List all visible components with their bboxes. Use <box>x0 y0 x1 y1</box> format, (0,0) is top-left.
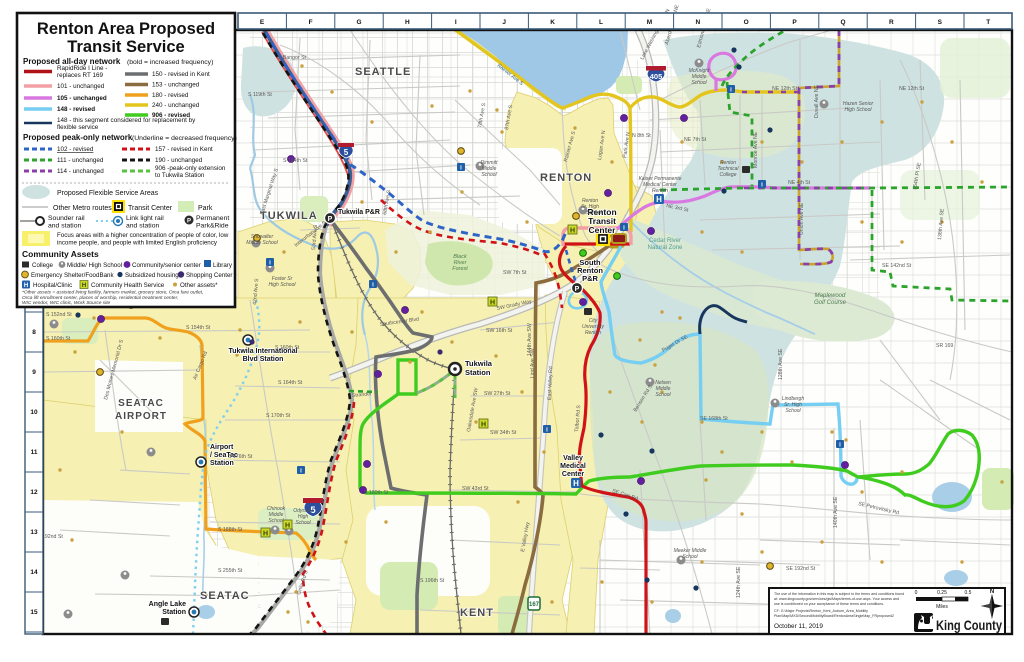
svg-text:S 180th St: S 180th St <box>364 490 389 496</box>
svg-text:College: College <box>720 172 737 178</box>
svg-text:H: H <box>573 479 579 488</box>
svg-text:and station: and station <box>48 223 81 230</box>
svg-text:NE 7th St: NE 7th St <box>684 137 707 143</box>
svg-text:E: E <box>260 19 265 26</box>
svg-text:Center: Center <box>589 225 617 235</box>
svg-text:Park&Ride: Park&Ride <box>196 223 229 230</box>
svg-text:Miles: Miles <box>936 604 948 610</box>
svg-text:F: F <box>309 19 313 26</box>
svg-text:Medical: Medical <box>560 463 586 470</box>
svg-text:101 - unchanged: 101 - unchanged <box>57 83 105 90</box>
svg-text:Orca lift enrollment center, p: Orca lift enrollment center, places of w… <box>22 295 178 301</box>
svg-text:Renton: Renton <box>652 188 668 194</box>
svg-text:Natural Zone: Natural Zone <box>648 245 683 251</box>
svg-text:H: H <box>656 195 662 204</box>
svg-text:CF: G:\Major Projects\Renton_: CF: G:\Major Projects\Renton_Kent_Auburn… <box>774 609 868 613</box>
svg-text:to Tukwila Station: to Tukwila Station <box>155 172 205 179</box>
svg-text:H: H <box>481 422 486 429</box>
svg-text:190 - unchanged: 190 - unchanged <box>155 157 203 164</box>
svg-text:S 154th St: S 154th St <box>186 325 211 331</box>
svg-text:105 - unchanged: 105 - unchanged <box>57 95 107 102</box>
svg-text:Subsidized housing: Subsidized housing <box>125 272 179 279</box>
svg-text:School: School <box>691 80 707 86</box>
svg-text:Forest: Forest <box>452 266 468 272</box>
svg-text:Emergency Shelter/FoodBank: Emergency Shelter/FoodBank <box>31 272 114 279</box>
svg-text:NE 4th St: NE 4th St <box>788 180 811 186</box>
svg-text:S 188th St: S 188th St <box>218 527 243 533</box>
svg-text:Q: Q <box>840 19 845 26</box>
svg-text:(bold = increased frequency): (bold = increased frequency) <box>127 59 213 66</box>
svg-text:Proposed Flexible Service Area: Proposed Flexible Service Areas <box>57 190 159 197</box>
svg-text:Other Metro routes: Other Metro routes <box>53 205 112 212</box>
svg-text:H: H <box>570 228 575 235</box>
svg-text:14: 14 <box>30 569 38 576</box>
svg-text:WIC vendor, WIC clinic, Work S: WIC vendor, WIC clinic, Work Source site <box>22 300 111 306</box>
svg-text:School: School <box>481 172 497 178</box>
svg-text:K: K <box>550 19 555 26</box>
svg-text:124th Ave SE: 124th Ave SE <box>736 566 742 598</box>
svg-text:H: H <box>24 283 28 289</box>
svg-text:High School: High School <box>269 282 297 288</box>
svg-text:G: G <box>356 19 361 26</box>
svg-text:Station: Station <box>210 460 234 467</box>
svg-text:12: 12 <box>30 489 38 496</box>
svg-text:P: P <box>792 19 797 26</box>
svg-text:SW 43rd St: SW 43rd St <box>462 486 489 492</box>
svg-text:(Underline = decreased frequen: (Underline = decreased frequency) <box>132 135 237 142</box>
svg-text:0.25: 0.25 <box>937 590 947 596</box>
svg-text:RapidRide I Line -: RapidRide I Line - <box>57 65 107 72</box>
svg-text:0: 0 <box>915 590 918 596</box>
svg-text:S 152nd St: S 152nd St <box>46 312 72 318</box>
svg-text:AIRPORT: AIRPORT <box>115 411 167 422</box>
svg-text:240 - unchanged: 240 - unchanged <box>152 102 200 109</box>
svg-text:Link light rail: Link light rail <box>126 215 164 222</box>
svg-text:SR 169: SR 169 <box>936 343 953 349</box>
svg-text:S 196th St: S 196th St <box>420 578 445 584</box>
svg-text:102 - revised: 102 - revised <box>57 146 94 153</box>
svg-text:S 160th St: S 160th St <box>275 345 300 351</box>
svg-text:Tukwila P&R: Tukwila P&R <box>338 209 380 216</box>
svg-text:S 170th St: S 170th St <box>266 413 291 419</box>
svg-text:405: 405 <box>650 72 663 81</box>
svg-text:140th Ave SE: 140th Ave SE <box>833 496 839 528</box>
svg-text:Community Assets: Community Assets <box>22 249 99 259</box>
svg-text:SW 16th St: SW 16th St <box>486 328 513 334</box>
svg-text:SW 27th St: SW 27th St <box>484 391 511 397</box>
svg-text:111 - unchanged: 111 - unchanged <box>57 157 104 164</box>
svg-text:R: R <box>889 19 894 26</box>
svg-text:King County: King County <box>936 618 1002 633</box>
svg-text:Golf Course: Golf Course <box>814 300 847 306</box>
svg-text:N: N <box>695 19 700 26</box>
svg-text:N 8th St: N 8th St <box>632 133 651 139</box>
svg-text:S 255th St: S 255th St <box>218 568 243 574</box>
svg-text:10: 10 <box>30 409 38 416</box>
svg-text:Permanent: Permanent <box>196 215 229 222</box>
svg-text:S 124th St: S 124th St <box>283 158 308 164</box>
svg-text:Hospital/Clinic: Hospital/Clinic <box>33 282 72 289</box>
svg-text:Cedar River: Cedar River <box>649 238 681 244</box>
svg-text:Park: Park <box>198 205 213 212</box>
svg-text:Middle School: Middle School <box>246 240 278 246</box>
svg-text:SE 192nd St: SE 192nd St <box>786 566 816 572</box>
svg-text:and station: and station <box>126 223 159 230</box>
svg-text:RENTON: RENTON <box>540 172 592 184</box>
svg-text:SE 168th St: SE 168th St <box>700 416 728 422</box>
svg-text:S Bangor St: S Bangor St <box>278 55 307 61</box>
svg-text:8: 8 <box>32 329 36 336</box>
svg-text:Monroe Ave NE: Monroe Ave NE <box>753 131 759 168</box>
svg-text:SW 7th St: SW 7th St <box>503 270 527 276</box>
svg-text:October 11, 2019: October 11, 2019 <box>774 623 823 630</box>
svg-text:148 - revised: 148 - revised <box>57 106 95 113</box>
svg-text:SEATAC: SEATAC <box>118 398 164 409</box>
svg-text:9: 9 <box>32 369 36 376</box>
svg-text:157 - revised in Kent: 157 - revised in Kent <box>155 146 213 153</box>
svg-text:Center: Center <box>562 471 584 478</box>
svg-text:Library: Library <box>213 262 233 269</box>
svg-text:NE 12th St: NE 12th St <box>899 86 925 92</box>
svg-text:replaces RT 169: replaces RT 169 <box>57 72 103 79</box>
svg-text:P&R: P&R <box>582 274 598 283</box>
svg-text:S: S <box>938 19 943 26</box>
svg-text:13: 13 <box>30 529 38 536</box>
svg-text:NE 12th St: NE 12th St <box>772 86 798 92</box>
svg-text:S 160th St: S 160th St <box>46 336 71 342</box>
svg-text:Maplewood: Maplewood <box>815 293 846 299</box>
svg-text:SE 142nd St: SE 142nd St <box>882 263 912 269</box>
svg-text:Union Ave NE: Union Ave NE <box>799 202 805 235</box>
svg-text:114 - unchanged: 114 - unchanged <box>57 168 104 175</box>
svg-text:5: 5 <box>344 148 349 157</box>
svg-text:L: L <box>599 19 603 26</box>
svg-text:H: H <box>263 531 268 538</box>
svg-text:J: J <box>502 19 506 26</box>
svg-text:153 - unchanged: 153 - unchanged <box>152 82 200 89</box>
svg-text:128th Ave SE: 128th Ave SE <box>778 348 784 380</box>
svg-text:KENT: KENT <box>460 607 494 619</box>
svg-text:P: P <box>187 219 191 225</box>
svg-text:The use of the information in: The use of the information in this map i… <box>774 592 904 596</box>
svg-text:School: School <box>268 518 284 524</box>
svg-text:*Other assets = assisted livin: *Other assets = assisted living facility… <box>22 290 203 296</box>
svg-text:M: M <box>647 19 652 26</box>
svg-text:H: H <box>82 283 86 289</box>
svg-text:Middle/ High School: Middle/ High School <box>67 262 122 269</box>
svg-text:Renton: Renton <box>585 330 601 336</box>
svg-text:Angle Lake: Angle Lake <box>149 601 186 608</box>
svg-text:East Valley Rd: East Valley Rd <box>547 366 554 400</box>
svg-text:School: School <box>785 408 801 414</box>
svg-text:144th Ave SW: 144th Ave SW <box>527 323 533 356</box>
svg-text:906 - revised: 906 - revised <box>152 112 190 119</box>
svg-text:H: H <box>285 523 290 530</box>
svg-text:income people, and people with: income people, and people with limited E… <box>57 240 218 247</box>
svg-text:S 176th St: S 176th St <box>228 454 253 460</box>
svg-text:Proposed peak-only network: Proposed peak-only network <box>23 133 133 142</box>
svg-text:Shopping Center: Shopping Center <box>186 272 232 279</box>
svg-text:Station: Station <box>162 609 186 616</box>
svg-text:School: School <box>586 210 602 216</box>
svg-text:Transit Service: Transit Service <box>67 38 184 56</box>
svg-text:180 - revised: 180 - revised <box>152 92 189 99</box>
svg-text:T: T <box>986 19 990 26</box>
svg-text:Transit Center: Transit Center <box>128 205 173 212</box>
svg-text:S 164th St: S 164th St <box>278 380 303 386</box>
svg-text:S 119th St: S 119th St <box>248 92 272 98</box>
svg-text:College: College <box>32 262 54 269</box>
svg-text:Renton Area Proposed: Renton Area Proposed <box>37 20 215 38</box>
svg-text:School: School <box>682 554 698 560</box>
svg-text:Other assets*: Other assets* <box>180 282 218 289</box>
svg-text:at: www.kingcounty.gov/service: at: www.kingcounty.gov/services/gis/Maps… <box>774 597 899 601</box>
svg-text:High School: High School <box>845 107 873 113</box>
svg-text:flexible service: flexible service <box>57 124 99 131</box>
svg-text:906 -peak-only extension: 906 -peak-only extension <box>155 165 226 172</box>
svg-text:Sounder rail: Sounder rail <box>48 215 85 222</box>
svg-text:use is conditioned on your acc: use is conditioned on your acceptance of… <box>774 602 884 606</box>
svg-text:Airport: Airport <box>210 444 234 451</box>
svg-text:Duvall Ave NE: Duvall Ave NE <box>814 84 820 118</box>
svg-text:O: O <box>744 19 749 26</box>
svg-text:11: 11 <box>31 449 38 456</box>
svg-text:SEATAC: SEATAC <box>200 590 250 602</box>
svg-text:0.5: 0.5 <box>965 590 972 596</box>
svg-text:15: 15 <box>30 609 38 616</box>
svg-text:Station: Station <box>465 368 491 377</box>
svg-text:H: H <box>405 19 410 26</box>
svg-text:Focus areas with a higher conc: Focus areas with a higher concentration … <box>57 232 229 239</box>
svg-text:TUKWILA: TUKWILA <box>260 210 318 222</box>
svg-text:Tukwila: Tukwila <box>465 359 493 368</box>
svg-text:School: School <box>295 520 311 526</box>
svg-text:H: H <box>490 300 495 307</box>
svg-text:Valley: Valley <box>563 455 583 462</box>
svg-text:150 - revised in Kent: 150 - revised in Kent <box>152 71 210 78</box>
svg-text:Plan\Map\MXD\SecondMobilityBoa: Plan\Map\MXD\SecondMobilityBoard\RentonA… <box>774 614 894 618</box>
svg-text:Community/senior center: Community/senior center <box>132 262 201 269</box>
svg-text:Community Health Service: Community Health Service <box>91 282 165 289</box>
svg-text:I: I <box>455 19 457 26</box>
svg-text:P: P <box>575 286 580 293</box>
svg-text:SEATTLE: SEATTLE <box>355 66 411 78</box>
svg-text:School: School <box>655 392 671 398</box>
svg-text:SW 34th St: SW 34th St <box>490 430 517 436</box>
svg-text:P: P <box>328 216 333 223</box>
svg-text:Blvd Station: Blvd Station <box>243 356 284 363</box>
svg-text:167: 167 <box>529 602 540 608</box>
svg-text:192nd St: 192nd St <box>42 534 63 540</box>
